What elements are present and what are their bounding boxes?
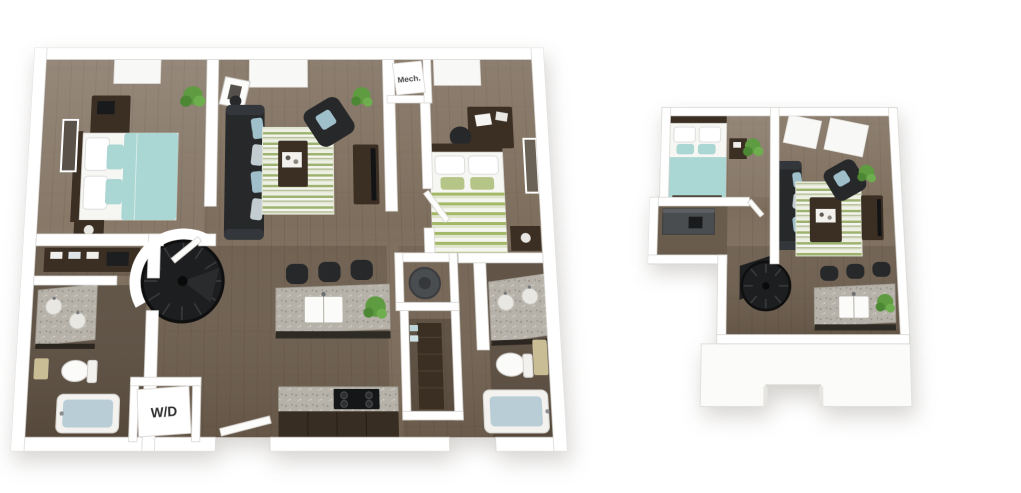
laundry-basket <box>33 358 49 379</box>
vanity-2 <box>488 274 548 346</box>
bed-2 <box>429 144 507 253</box>
tv-screen <box>371 148 377 200</box>
floorplan-canvas: Mech. W/D <box>0 0 1021 493</box>
skylight-bedroom-2 <box>433 60 480 86</box>
tv-stand <box>353 144 380 204</box>
coffee-table-small-unit <box>810 197 842 242</box>
towel-rack <box>532 340 548 376</box>
nightstand-2 <box>510 226 541 251</box>
vanity-1 <box>35 284 97 349</box>
tv-screen-small-unit <box>877 199 882 236</box>
cooktop <box>334 389 380 409</box>
small-unit-drawing <box>643 103 923 420</box>
bed-small-unit <box>668 116 727 202</box>
washer-dryer-closet: W/D <box>135 386 192 437</box>
skylight-bedroom-1 <box>114 60 161 84</box>
skylight-1 <box>783 115 821 149</box>
island-sink <box>304 292 343 323</box>
toilet-2 <box>496 353 533 377</box>
kitchen-counter <box>279 387 400 437</box>
mech-closet: Mech. <box>392 61 425 95</box>
floor-plan-small-unit <box>643 103 923 420</box>
bathtub-2 <box>483 390 551 433</box>
coffee-table <box>278 141 308 187</box>
skylight-living-room <box>249 60 307 88</box>
sofa <box>224 105 265 240</box>
water-heater-closet <box>409 268 440 298</box>
bathtub-1 <box>55 394 119 433</box>
wall-art-bedroom-1 <box>61 120 78 171</box>
tv-on-dresser <box>97 101 115 114</box>
terrace <box>700 344 912 407</box>
wd-label: W/D <box>151 404 178 421</box>
bed-1 <box>70 131 178 222</box>
tv-stand-small-unit <box>861 195 884 240</box>
large-unit-drawing: Mech. W/D <box>10 48 567 452</box>
closet-shelves <box>43 248 140 272</box>
floor-plan-large-unit: Mech. W/D <box>10 48 567 452</box>
small-unit-kitchen <box>814 262 896 331</box>
toilet-1 <box>61 360 97 382</box>
island-sink-small-unit <box>839 292 870 318</box>
appliance-niche <box>662 209 714 234</box>
